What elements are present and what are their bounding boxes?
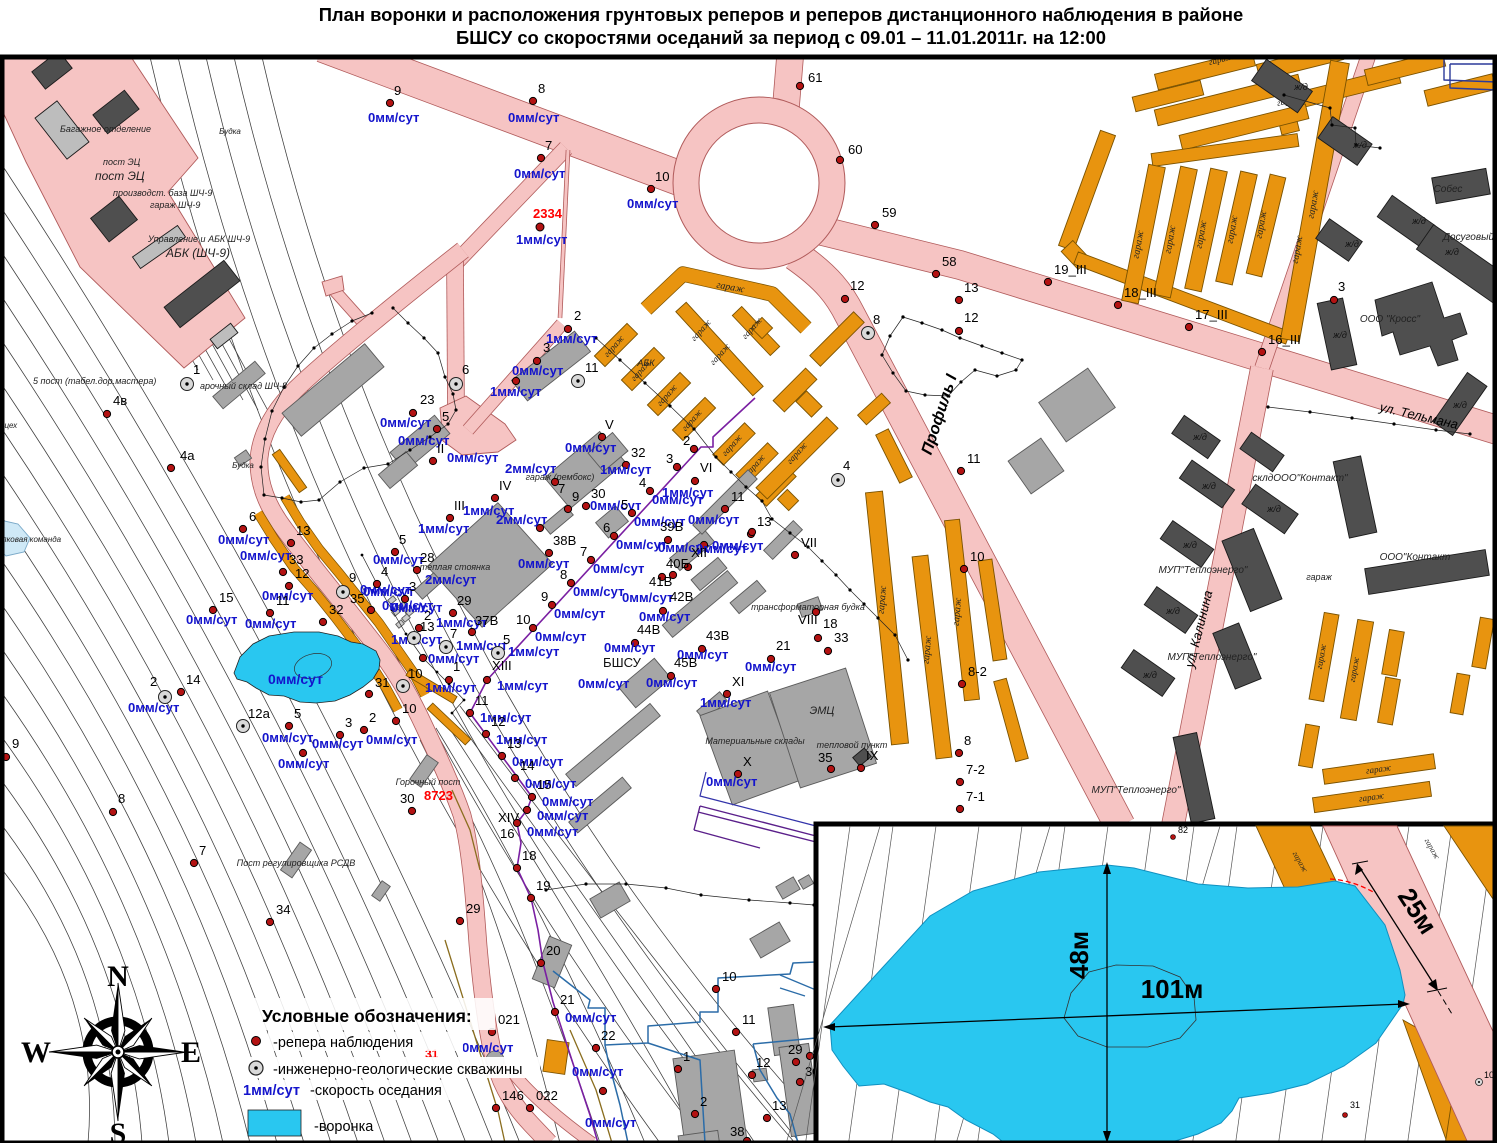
svg-text:10: 10 — [722, 969, 737, 984]
svg-text:9: 9 — [349, 570, 356, 585]
svg-text:ж/д: ж/д — [1344, 239, 1359, 249]
svg-text:11: 11 — [585, 360, 599, 375]
svg-text:3: 3 — [543, 340, 550, 355]
svg-text:Условные обозначения:: Условные обозначения: — [262, 1006, 472, 1026]
svg-text:0мм/сут: 0мм/сут — [240, 548, 292, 563]
svg-text:4: 4 — [843, 458, 850, 473]
svg-text:2: 2 — [150, 674, 157, 689]
svg-text:9: 9 — [12, 736, 19, 751]
svg-text:19: 19 — [536, 878, 551, 893]
svg-text:БШСУ: БШСУ — [603, 655, 642, 670]
svg-text:План воронки и расположения гр: План воронки и расположения грунтовых ре… — [319, 4, 1244, 25]
svg-text:0мм/сут: 0мм/сут — [527, 824, 579, 839]
svg-text:13: 13 — [772, 1098, 787, 1113]
svg-text:30: 30 — [400, 791, 415, 806]
svg-text:44В: 44В — [637, 622, 661, 637]
svg-text:12: 12 — [756, 1055, 771, 1070]
svg-text:28: 28 — [420, 550, 435, 565]
svg-text:10: 10 — [402, 701, 417, 716]
svg-text:13: 13 — [757, 514, 772, 529]
svg-text:60: 60 — [848, 142, 863, 157]
svg-text:ж/д: ж/д — [1142, 670, 1157, 680]
svg-text:9: 9 — [572, 489, 579, 504]
svg-text:0мм/сут: 0мм/сут — [218, 532, 270, 547]
svg-text:101м: 101м — [1141, 974, 1204, 1004]
svg-text:022: 022 — [536, 1088, 558, 1103]
svg-text:0мм/сут: 0мм/сут — [565, 440, 617, 455]
svg-text:0мм/сут: 0мм/сут — [262, 730, 314, 745]
svg-text:ж/д: ж/д — [1332, 330, 1347, 340]
svg-text:0мм/сут: 0мм/сут — [391, 600, 443, 615]
svg-text:8: 8 — [118, 791, 125, 806]
svg-text:XIII: XIII — [492, 658, 512, 673]
svg-text:0мм/сут: 0мм/сут — [380, 415, 432, 430]
svg-text:0мм/сут: 0мм/сут — [508, 110, 560, 125]
svg-text:0мм/сут: 0мм/сут — [268, 671, 323, 687]
svg-text:0мм/сут: 0мм/сут — [554, 606, 606, 621]
svg-text:5: 5 — [294, 706, 301, 721]
svg-text:45В: 45В — [674, 655, 698, 670]
svg-text:12а: 12а — [248, 706, 271, 721]
svg-text:0мм/сут: 0мм/сут — [512, 363, 564, 378]
svg-text:ж/д: ж/д — [1444, 247, 1459, 257]
svg-text:19_III: 19_III — [1054, 262, 1087, 277]
svg-text:ЭМЦ: ЭМЦ — [810, 705, 835, 717]
svg-text:0мм/сут: 0мм/сут — [447, 450, 499, 465]
svg-text:29: 29 — [466, 901, 481, 916]
svg-text:Багажное отделение: Багажное отделение — [60, 124, 151, 134]
svg-text:0мм/сут: 0мм/сут — [706, 774, 758, 789]
svg-text:1мм/сут: 1мм/сут — [490, 384, 542, 399]
svg-text:4в: 4в — [113, 393, 127, 408]
svg-text:9: 9 — [541, 589, 548, 604]
svg-text:10: 10 — [408, 666, 423, 681]
svg-text:7-1: 7-1 — [966, 789, 985, 804]
svg-text:0мм/сут: 0мм/сут — [572, 1064, 624, 1079]
svg-text:59: 59 — [882, 205, 897, 220]
svg-text:трансформаторная будка: трансформаторная будка — [751, 602, 865, 612]
svg-text:38: 38 — [730, 1124, 745, 1139]
svg-text:2: 2 — [700, 1094, 707, 1109]
svg-text:W: W — [21, 1036, 51, 1069]
svg-text:1мм/сут: 1мм/сут — [508, 644, 560, 659]
svg-text:ж/д: ж/д — [1192, 432, 1207, 442]
svg-text:3: 3 — [409, 579, 416, 594]
svg-text:ООО"Контакт: ООО"Контакт — [1380, 552, 1451, 563]
svg-text:ж/д: ж/д — [1452, 400, 1467, 410]
svg-text:0мм/сут: 0мм/сут — [514, 166, 566, 181]
svg-text:13: 13 — [296, 523, 311, 538]
svg-text:-репера наблюдения: -репера наблюдения — [273, 1035, 413, 1051]
svg-text:1мм/сут: 1мм/сут — [700, 695, 752, 710]
svg-text:ж/д: ж/д — [1411, 216, 1426, 226]
svg-text:11: 11 — [475, 693, 489, 708]
svg-text:22: 22 — [601, 1028, 616, 1043]
svg-text:2334: 2334 — [533, 206, 563, 221]
svg-text:0мм/сут: 0мм/сут — [627, 196, 679, 211]
svg-text:4: 4 — [381, 564, 388, 579]
svg-text:1: 1 — [453, 659, 460, 674]
svg-text:1мм/сут: 1мм/сут — [480, 710, 532, 725]
svg-text:2: 2 — [369, 710, 376, 725]
svg-text:0мм/сут: 0мм/сут — [604, 640, 656, 655]
svg-text:Пост регулировщика РСДВ: Пост регулировщика РСДВ — [237, 858, 356, 868]
svg-text:2: 2 — [683, 433, 690, 448]
svg-text:1: 1 — [683, 1049, 690, 1064]
svg-text:6: 6 — [603, 520, 610, 535]
svg-text:8: 8 — [873, 312, 880, 327]
svg-text:Материальные склады: Материальные склады — [705, 736, 805, 746]
svg-text:16: 16 — [500, 826, 515, 841]
svg-text:склдООО"Контакт": склдООО"Контакт" — [1252, 473, 1348, 484]
svg-text:0мм/сут: 0мм/сут — [312, 736, 364, 751]
svg-text:1мм/сут: 1мм/сут — [463, 503, 515, 518]
svg-text:8-2: 8-2 — [968, 664, 987, 679]
svg-text:1мм/сут: 1мм/сут — [497, 678, 549, 693]
svg-text:4а: 4а — [180, 448, 195, 463]
svg-text:32: 32 — [631, 445, 646, 460]
svg-text:8: 8 — [560, 567, 567, 582]
svg-text:10: 10 — [516, 612, 531, 627]
svg-text:-инженерно-геологические скваж: -инженерно-геологические скважины — [273, 1062, 522, 1078]
svg-text:14: 14 — [520, 758, 535, 773]
svg-text:31: 31 — [375, 675, 390, 690]
svg-text:ж/д: ж/д — [1182, 540, 1197, 550]
svg-text:6: 6 — [462, 362, 469, 377]
svg-text:12: 12 — [491, 714, 506, 729]
svg-text:Управление и АБК ШЧ-9: Управление и АБК ШЧ-9 — [147, 234, 250, 244]
svg-text:58: 58 — [942, 254, 957, 269]
svg-text:0мм/сут: 0мм/сут — [542, 794, 594, 809]
svg-text:АБК (ШЧ-9): АБК (ШЧ-9) — [165, 246, 230, 260]
svg-text:пост ЭЦ: пост ЭЦ — [103, 157, 141, 167]
svg-text:11: 11 — [731, 489, 745, 504]
svg-text:ООО "Кросс": ООО "Кросс" — [1360, 314, 1421, 325]
svg-text:XII: XII — [691, 545, 707, 560]
svg-text:V: V — [605, 417, 614, 432]
svg-text:0мм/сут: 0мм/сут — [186, 612, 238, 627]
svg-text:37В: 37В — [475, 613, 499, 628]
svg-text:13: 13 — [964, 280, 979, 295]
svg-text:33: 33 — [834, 630, 849, 645]
svg-text:ж/д: ж/д — [1352, 140, 1367, 150]
svg-text:МУП"Теплоэнерго": МУП"Теплоэнерго" — [1159, 565, 1248, 576]
svg-text:32: 32 — [329, 602, 344, 617]
svg-text:0мм/сут: 0мм/сут — [585, 1115, 637, 1130]
svg-text:МУП"Теплоэнерго": МУП"Теплоэнерго" — [1168, 652, 1257, 663]
svg-text:29: 29 — [788, 1042, 803, 1057]
svg-text:0мм/сут: 0мм/сут — [462, 1040, 514, 1055]
svg-text:1мм/сут: 1мм/сут — [662, 485, 714, 500]
svg-text:VI: VI — [700, 460, 712, 475]
svg-text:гараж ШЧ-9: гараж ШЧ-9 — [150, 200, 200, 210]
svg-text:5: 5 — [621, 497, 628, 512]
svg-text:1мм/сут: 1мм/сут — [425, 680, 477, 695]
svg-text:II: II — [437, 441, 444, 456]
svg-text:0мм/сут: 0мм/сут — [537, 808, 589, 823]
svg-text:0мм/сут: 0мм/сут — [688, 512, 740, 527]
svg-text:III: III — [454, 498, 465, 513]
svg-text:1мм/сут: 1мм/сут — [418, 521, 470, 536]
svg-text:5: 5 — [399, 532, 406, 547]
svg-text:0мм/сут: 0мм/сут — [622, 590, 674, 605]
svg-text:0мм/сут: 0мм/сут — [593, 561, 645, 576]
svg-text:3: 3 — [666, 451, 673, 466]
svg-text:61: 61 — [808, 70, 823, 85]
svg-text:12: 12 — [295, 566, 310, 581]
svg-text:1мм/сут: 1мм/сут — [516, 232, 568, 247]
svg-text:13: 13 — [420, 619, 435, 634]
svg-text:7: 7 — [199, 843, 206, 858]
svg-text:11: 11 — [742, 1012, 756, 1027]
svg-text:11: 11 — [276, 593, 290, 608]
svg-text:XI: XI — [732, 674, 744, 689]
svg-text:0мм/сут: 0мм/сут — [128, 700, 180, 715]
svg-text:ж/д: ж/д — [1165, 606, 1180, 616]
svg-text:12: 12 — [850, 278, 865, 293]
svg-text:VIII: VIII — [798, 612, 818, 627]
svg-text:2мм/сут: 2мм/сут — [505, 461, 557, 476]
svg-text:1мм/сут: 1мм/сут — [546, 331, 598, 346]
svg-text:21: 21 — [776, 638, 791, 653]
svg-text:6: 6 — [249, 509, 256, 524]
svg-text:0мм/сут: 0мм/сут — [245, 616, 297, 631]
svg-text:S: S — [110, 1117, 127, 1143]
svg-text:21: 21 — [560, 992, 575, 1007]
svg-text:16_III: 16_III — [1268, 332, 1301, 347]
svg-text:42В: 42В — [670, 589, 694, 604]
svg-text:33: 33 — [289, 552, 304, 567]
svg-text:Будка: Будка — [219, 127, 241, 136]
svg-text:арочный склад ШЧ-8: арочный склад ШЧ-8 — [200, 381, 287, 391]
svg-text:2: 2 — [574, 308, 581, 323]
svg-text:39В: 39В — [660, 519, 684, 534]
svg-text:1: 1 — [193, 362, 200, 377]
svg-text:ж/д: ж/д — [1201, 481, 1216, 491]
svg-text:43В: 43В — [706, 628, 730, 643]
svg-text:N: N — [107, 960, 129, 993]
svg-text:гараж: гараж — [1306, 572, 1332, 582]
svg-text:1мм/сут: 1мм/сут — [243, 1083, 300, 1099]
svg-text:34: 34 — [276, 902, 291, 917]
svg-text:X: X — [743, 754, 752, 769]
svg-text:8: 8 — [538, 81, 545, 96]
svg-text:8723: 8723 — [424, 788, 453, 803]
svg-text:0мм/сут: 0мм/сут — [366, 732, 418, 747]
svg-text:Собес: Собес — [1434, 183, 1463, 195]
svg-text:0мм/сут: 0мм/сут — [578, 676, 630, 691]
svg-text:АБК: АБК — [636, 358, 655, 368]
svg-text:пост ЭЦ: пост ЭЦ — [95, 169, 145, 183]
svg-text:VII: VII — [801, 535, 817, 550]
svg-text:15: 15 — [537, 777, 552, 792]
svg-text:31: 31 — [1350, 1100, 1360, 1110]
svg-text:146: 146 — [502, 1088, 524, 1103]
svg-text:82: 82 — [1178, 825, 1188, 835]
svg-text:1мм/сут: 1мм/сут — [496, 732, 548, 747]
svg-text:10: 10 — [655, 169, 670, 184]
svg-text:БШСУ со скоростями оседаний за: БШСУ со скоростями оседаний за период с … — [456, 27, 1106, 48]
svg-text:E: E — [181, 1036, 201, 1069]
svg-text:производст. база ШЧ-9: производст. база ШЧ-9 — [113, 188, 212, 198]
svg-text:5: 5 — [442, 409, 449, 424]
svg-text:18_III: 18_III — [1124, 285, 1157, 300]
svg-text:41В: 41В — [649, 574, 673, 589]
svg-text:40Б: 40Б — [666, 556, 689, 571]
svg-text:5 пост (табел.дор.мастера): 5 пост (табел.дор.мастера) — [33, 376, 156, 386]
svg-text:3: 3 — [1338, 279, 1345, 294]
svg-text:13: 13 — [507, 736, 522, 751]
svg-text:3: 3 — [345, 715, 352, 730]
svg-text:лковая команда: лковая команда — [1, 535, 62, 544]
svg-text:9: 9 — [394, 83, 401, 98]
svg-text:8: 8 — [964, 733, 971, 748]
svg-text:0мм/сут: 0мм/сут — [565, 1010, 617, 1025]
svg-text:IV: IV — [499, 478, 512, 493]
svg-text:7: 7 — [545, 138, 552, 153]
svg-text:15: 15 — [219, 590, 234, 605]
svg-text:МУП"Теплоэнерго": МУП"Теплоэнерго" — [1092, 785, 1181, 796]
svg-text:ж/д: ж/д — [1266, 504, 1281, 514]
svg-text:0мм/сут: 0мм/сут — [278, 756, 330, 771]
svg-text:021: 021 — [498, 1012, 520, 1027]
svg-text:Горочный пост: Горочный пост — [396, 777, 461, 787]
svg-text:12: 12 — [964, 310, 979, 325]
svg-text:14: 14 — [186, 672, 201, 687]
svg-text:35: 35 — [818, 750, 833, 765]
svg-text:ж/д: ж/д — [1293, 82, 1308, 92]
svg-text:17_III: 17_III — [1195, 307, 1228, 322]
svg-text:0мм/сут: 0мм/сут — [646, 675, 698, 690]
svg-text:7: 7 — [558, 481, 565, 496]
svg-text:48м: 48м — [1064, 931, 1094, 979]
svg-text:18: 18 — [522, 848, 537, 863]
svg-text:29: 29 — [457, 593, 472, 608]
svg-text:-воронка: -воронка — [314, 1119, 374, 1135]
svg-text:0мм/сут: 0мм/сут — [573, 584, 625, 599]
svg-text:10: 10 — [970, 549, 985, 564]
svg-text:Будка: Будка — [232, 461, 254, 470]
svg-text:0мм/сут: 0мм/сут — [745, 659, 797, 674]
svg-text:4: 4 — [639, 475, 646, 490]
svg-text:7-2: 7-2 — [966, 762, 985, 777]
svg-text:0мм/сут: 0мм/сут — [368, 110, 420, 125]
svg-text:20: 20 — [546, 943, 561, 958]
svg-text:38В: 38В — [553, 533, 577, 548]
svg-text:Досуговый: Досуговый — [1442, 232, 1494, 243]
svg-text:18: 18 — [823, 616, 838, 631]
svg-text:7: 7 — [580, 544, 587, 559]
svg-text:11: 11 — [967, 451, 981, 466]
svg-text:-скорость оседания: -скорость оседания — [310, 1083, 442, 1099]
svg-text:0мм/сут: 0мм/сут — [535, 629, 587, 644]
svg-text:2мм/сут: 2мм/сут — [425, 572, 477, 587]
svg-text:23: 23 — [420, 392, 435, 407]
svg-text:IX: IX — [866, 748, 879, 763]
